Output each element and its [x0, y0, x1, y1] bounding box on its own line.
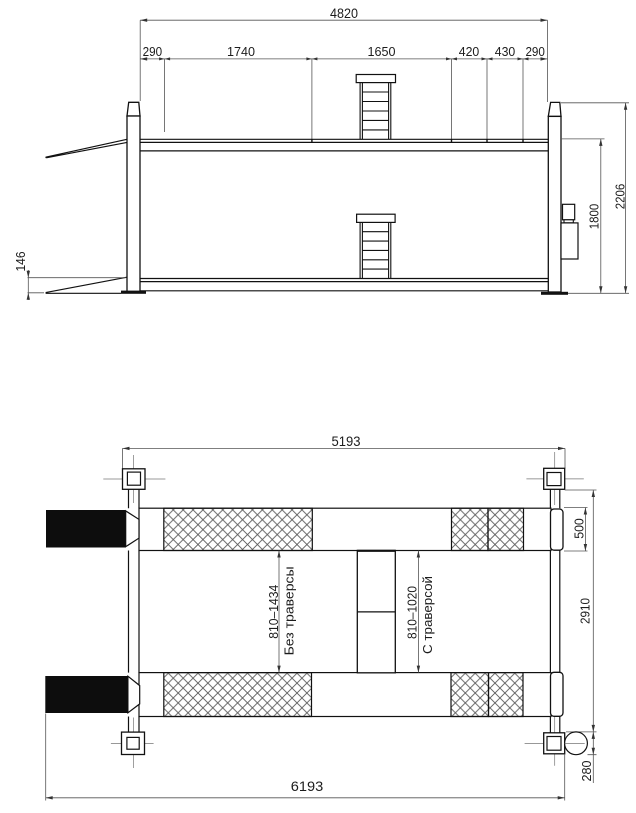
svg-text:1740: 1740	[227, 44, 255, 59]
svg-text:420: 420	[459, 44, 480, 59]
svg-text:146: 146	[13, 252, 28, 272]
svg-text:810–1434: 810–1434	[266, 585, 281, 639]
svg-text:280: 280	[579, 761, 594, 782]
svg-text:2206: 2206	[613, 184, 628, 210]
svg-text:290: 290	[525, 44, 545, 59]
svg-text:1800: 1800	[586, 204, 601, 230]
svg-text:4820: 4820	[330, 6, 358, 21]
svg-text:290: 290	[143, 44, 163, 59]
svg-text:5193: 5193	[332, 434, 361, 449]
svg-text:Без траверсы: Без траверсы	[281, 566, 296, 655]
svg-text:500: 500	[571, 518, 586, 539]
svg-text:1650: 1650	[368, 44, 396, 59]
svg-text:810–1020: 810–1020	[405, 586, 420, 639]
svg-text:430: 430	[495, 44, 516, 59]
svg-text:6193: 6193	[291, 779, 324, 794]
svg-text:С траверсой: С траверсой	[420, 576, 435, 654]
svg-text:2910: 2910	[578, 598, 593, 624]
